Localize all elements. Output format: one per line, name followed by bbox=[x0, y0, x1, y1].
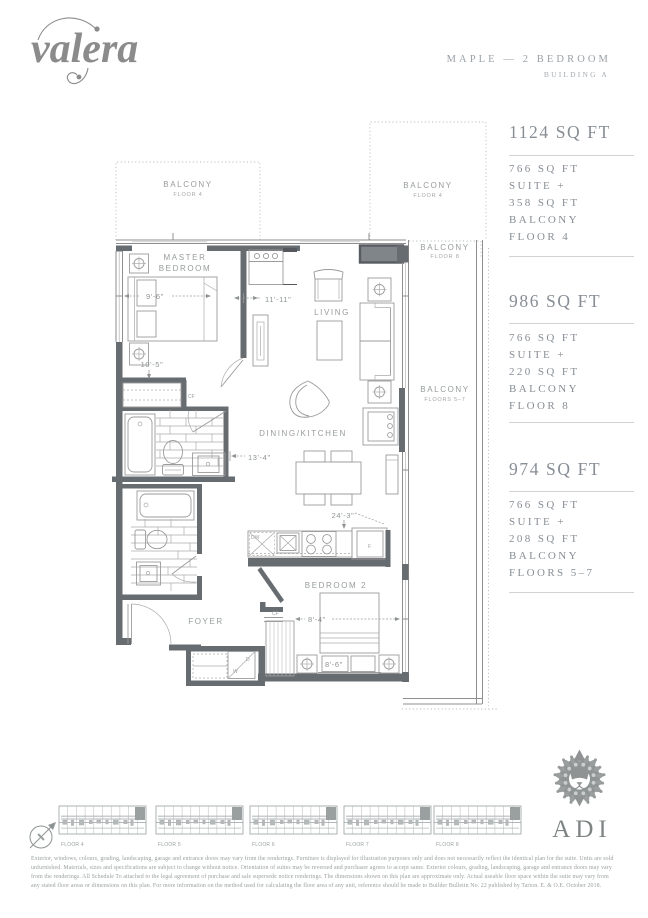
svg-text:24'-3": 24'-3" bbox=[332, 511, 355, 520]
svg-text:BUILDING A: BUILDING A bbox=[544, 70, 609, 79]
svg-text:208 SQ FT: 208 SQ FT bbox=[509, 533, 580, 545]
svg-text:FLOOR 6: FLOOR 6 bbox=[252, 842, 275, 848]
svg-text:ADI: ADI bbox=[552, 816, 611, 843]
svg-text:FLOOR 4: FLOOR 4 bbox=[509, 231, 570, 243]
svg-text:11'-11": 11'-11" bbox=[265, 295, 291, 304]
svg-text:FLOOR 8: FLOOR 8 bbox=[436, 842, 459, 848]
svg-text:SUITE +: SUITE + bbox=[509, 180, 566, 192]
svg-text:CF: CF bbox=[188, 394, 195, 400]
svg-text:F: F bbox=[368, 544, 371, 550]
svg-text:FLOOR 4: FLOOR 4 bbox=[173, 192, 202, 198]
svg-text:BALCONY: BALCONY bbox=[403, 181, 452, 190]
svg-text:766 SQ FT: 766 SQ FT bbox=[509, 332, 580, 344]
svg-text:BALCONY: BALCONY bbox=[420, 385, 469, 394]
svg-text:DINING/KITCHEN: DINING/KITCHEN bbox=[259, 429, 347, 438]
svg-text:8'-6": 8'-6" bbox=[325, 660, 343, 669]
svg-text:358 SQ FT: 358 SQ FT bbox=[509, 197, 580, 209]
svg-text:from the renderings. All Sched: from the renderings. All Schedule To att… bbox=[31, 873, 609, 880]
svg-text:valera: valera bbox=[31, 26, 138, 72]
svg-text:D: D bbox=[246, 657, 250, 663]
svg-text:9'-6": 9'-6" bbox=[146, 292, 164, 301]
svg-text:974 SQ FT: 974 SQ FT bbox=[509, 459, 601, 479]
svg-text:BEDROOM: BEDROOM bbox=[159, 264, 212, 273]
svg-text:unfurnished. Materials, sizes: unfurnished. Materials, sizes and specif… bbox=[31, 864, 612, 871]
svg-text:8'-4": 8'-4" bbox=[308, 615, 326, 624]
svg-text:FLOOR 4: FLOOR 4 bbox=[61, 842, 84, 848]
svg-text:10'-5": 10'-5" bbox=[141, 360, 164, 369]
svg-text:MASTER: MASTER bbox=[164, 253, 207, 262]
svg-text:MAPLE — 2 BEDROOM: MAPLE — 2 BEDROOM bbox=[447, 54, 611, 65]
svg-text:any stated floor areas or dime: any stated floor areas or dimensions on … bbox=[31, 882, 602, 889]
svg-text:SUITE +: SUITE + bbox=[509, 349, 566, 361]
svg-text:Exterior, windows, colours, gr: Exterior, windows, colours, grading, lan… bbox=[31, 855, 614, 862]
svg-text:BALCONY: BALCONY bbox=[509, 214, 579, 226]
svg-text:1124 SQ FT: 1124 SQ FT bbox=[509, 122, 611, 142]
svg-text:FLOORS 5–7: FLOORS 5–7 bbox=[424, 397, 465, 403]
svg-text:986 SQ FT: 986 SQ FT bbox=[509, 291, 601, 311]
svg-text:13'-4": 13'-4" bbox=[248, 453, 271, 462]
svg-text:766 SQ FT: 766 SQ FT bbox=[509, 163, 580, 175]
svg-text:DW: DW bbox=[251, 535, 260, 541]
svg-text:FLOOR 5: FLOOR 5 bbox=[158, 842, 181, 848]
svg-text:766 SQ FT: 766 SQ FT bbox=[509, 499, 580, 511]
svg-text:FLOOR 8: FLOOR 8 bbox=[509, 400, 570, 412]
svg-text:FLOOR 7: FLOOR 7 bbox=[346, 842, 369, 848]
svg-text:FOYER: FOYER bbox=[188, 617, 224, 626]
svg-text:FLOORS 5–7: FLOORS 5–7 bbox=[509, 567, 594, 579]
svg-text:CF: CF bbox=[272, 611, 279, 617]
svg-text:BALCONY: BALCONY bbox=[163, 180, 212, 189]
svg-text:LIVING: LIVING bbox=[314, 308, 350, 317]
svg-text:BALCONY: BALCONY bbox=[509, 550, 579, 562]
svg-text:BALCONY: BALCONY bbox=[420, 243, 469, 252]
svg-text:BALCONY: BALCONY bbox=[509, 383, 579, 395]
svg-text:FLOOR 8: FLOOR 8 bbox=[430, 254, 459, 260]
svg-text:FLOOR 4: FLOOR 4 bbox=[413, 193, 442, 199]
svg-text:SUITE +: SUITE + bbox=[509, 516, 566, 528]
svg-text:W: W bbox=[233, 669, 238, 675]
svg-text:BEDROOM 2: BEDROOM 2 bbox=[305, 581, 367, 590]
svg-text:220 SQ FT: 220 SQ FT bbox=[509, 366, 580, 378]
